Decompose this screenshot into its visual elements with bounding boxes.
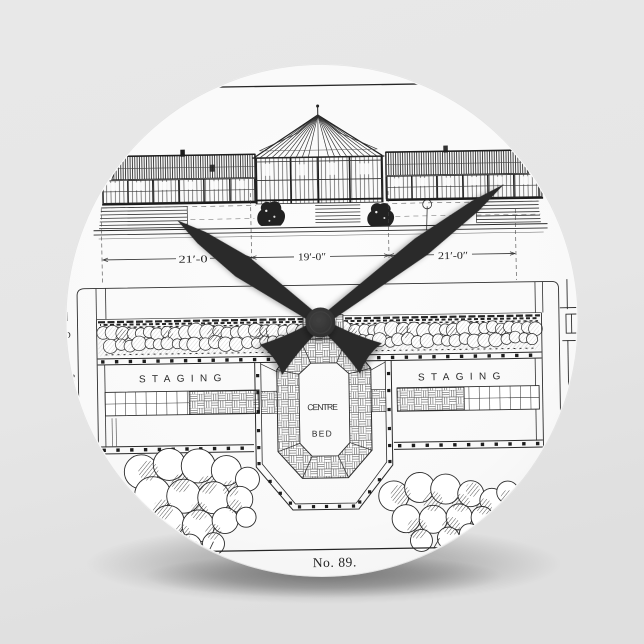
svg-text:21′-0″: 21′-0″	[438, 251, 468, 262]
svg-text:BED: BED	[312, 428, 335, 438]
svg-text:CENTRE: CENTRE	[307, 402, 339, 413]
svg-text:21′-0: 21′-0	[178, 254, 207, 265]
svg-text:No. 89.: No. 89.	[313, 554, 357, 570]
svg-text:19′-0″: 19′-0″	[298, 252, 326, 263]
svg-text:STAGING: STAGING	[139, 373, 227, 385]
svg-text:STAGING: STAGING	[418, 371, 506, 383]
